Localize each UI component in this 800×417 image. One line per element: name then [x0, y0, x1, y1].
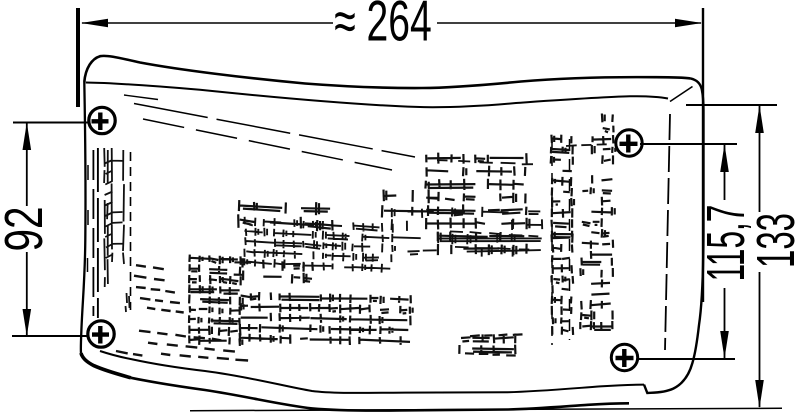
svg-text:≈ 264: ≈ 264 — [334, 0, 432, 54]
svg-text:92: 92 — [0, 206, 54, 251]
svg-text:133: 133 — [747, 213, 800, 268]
